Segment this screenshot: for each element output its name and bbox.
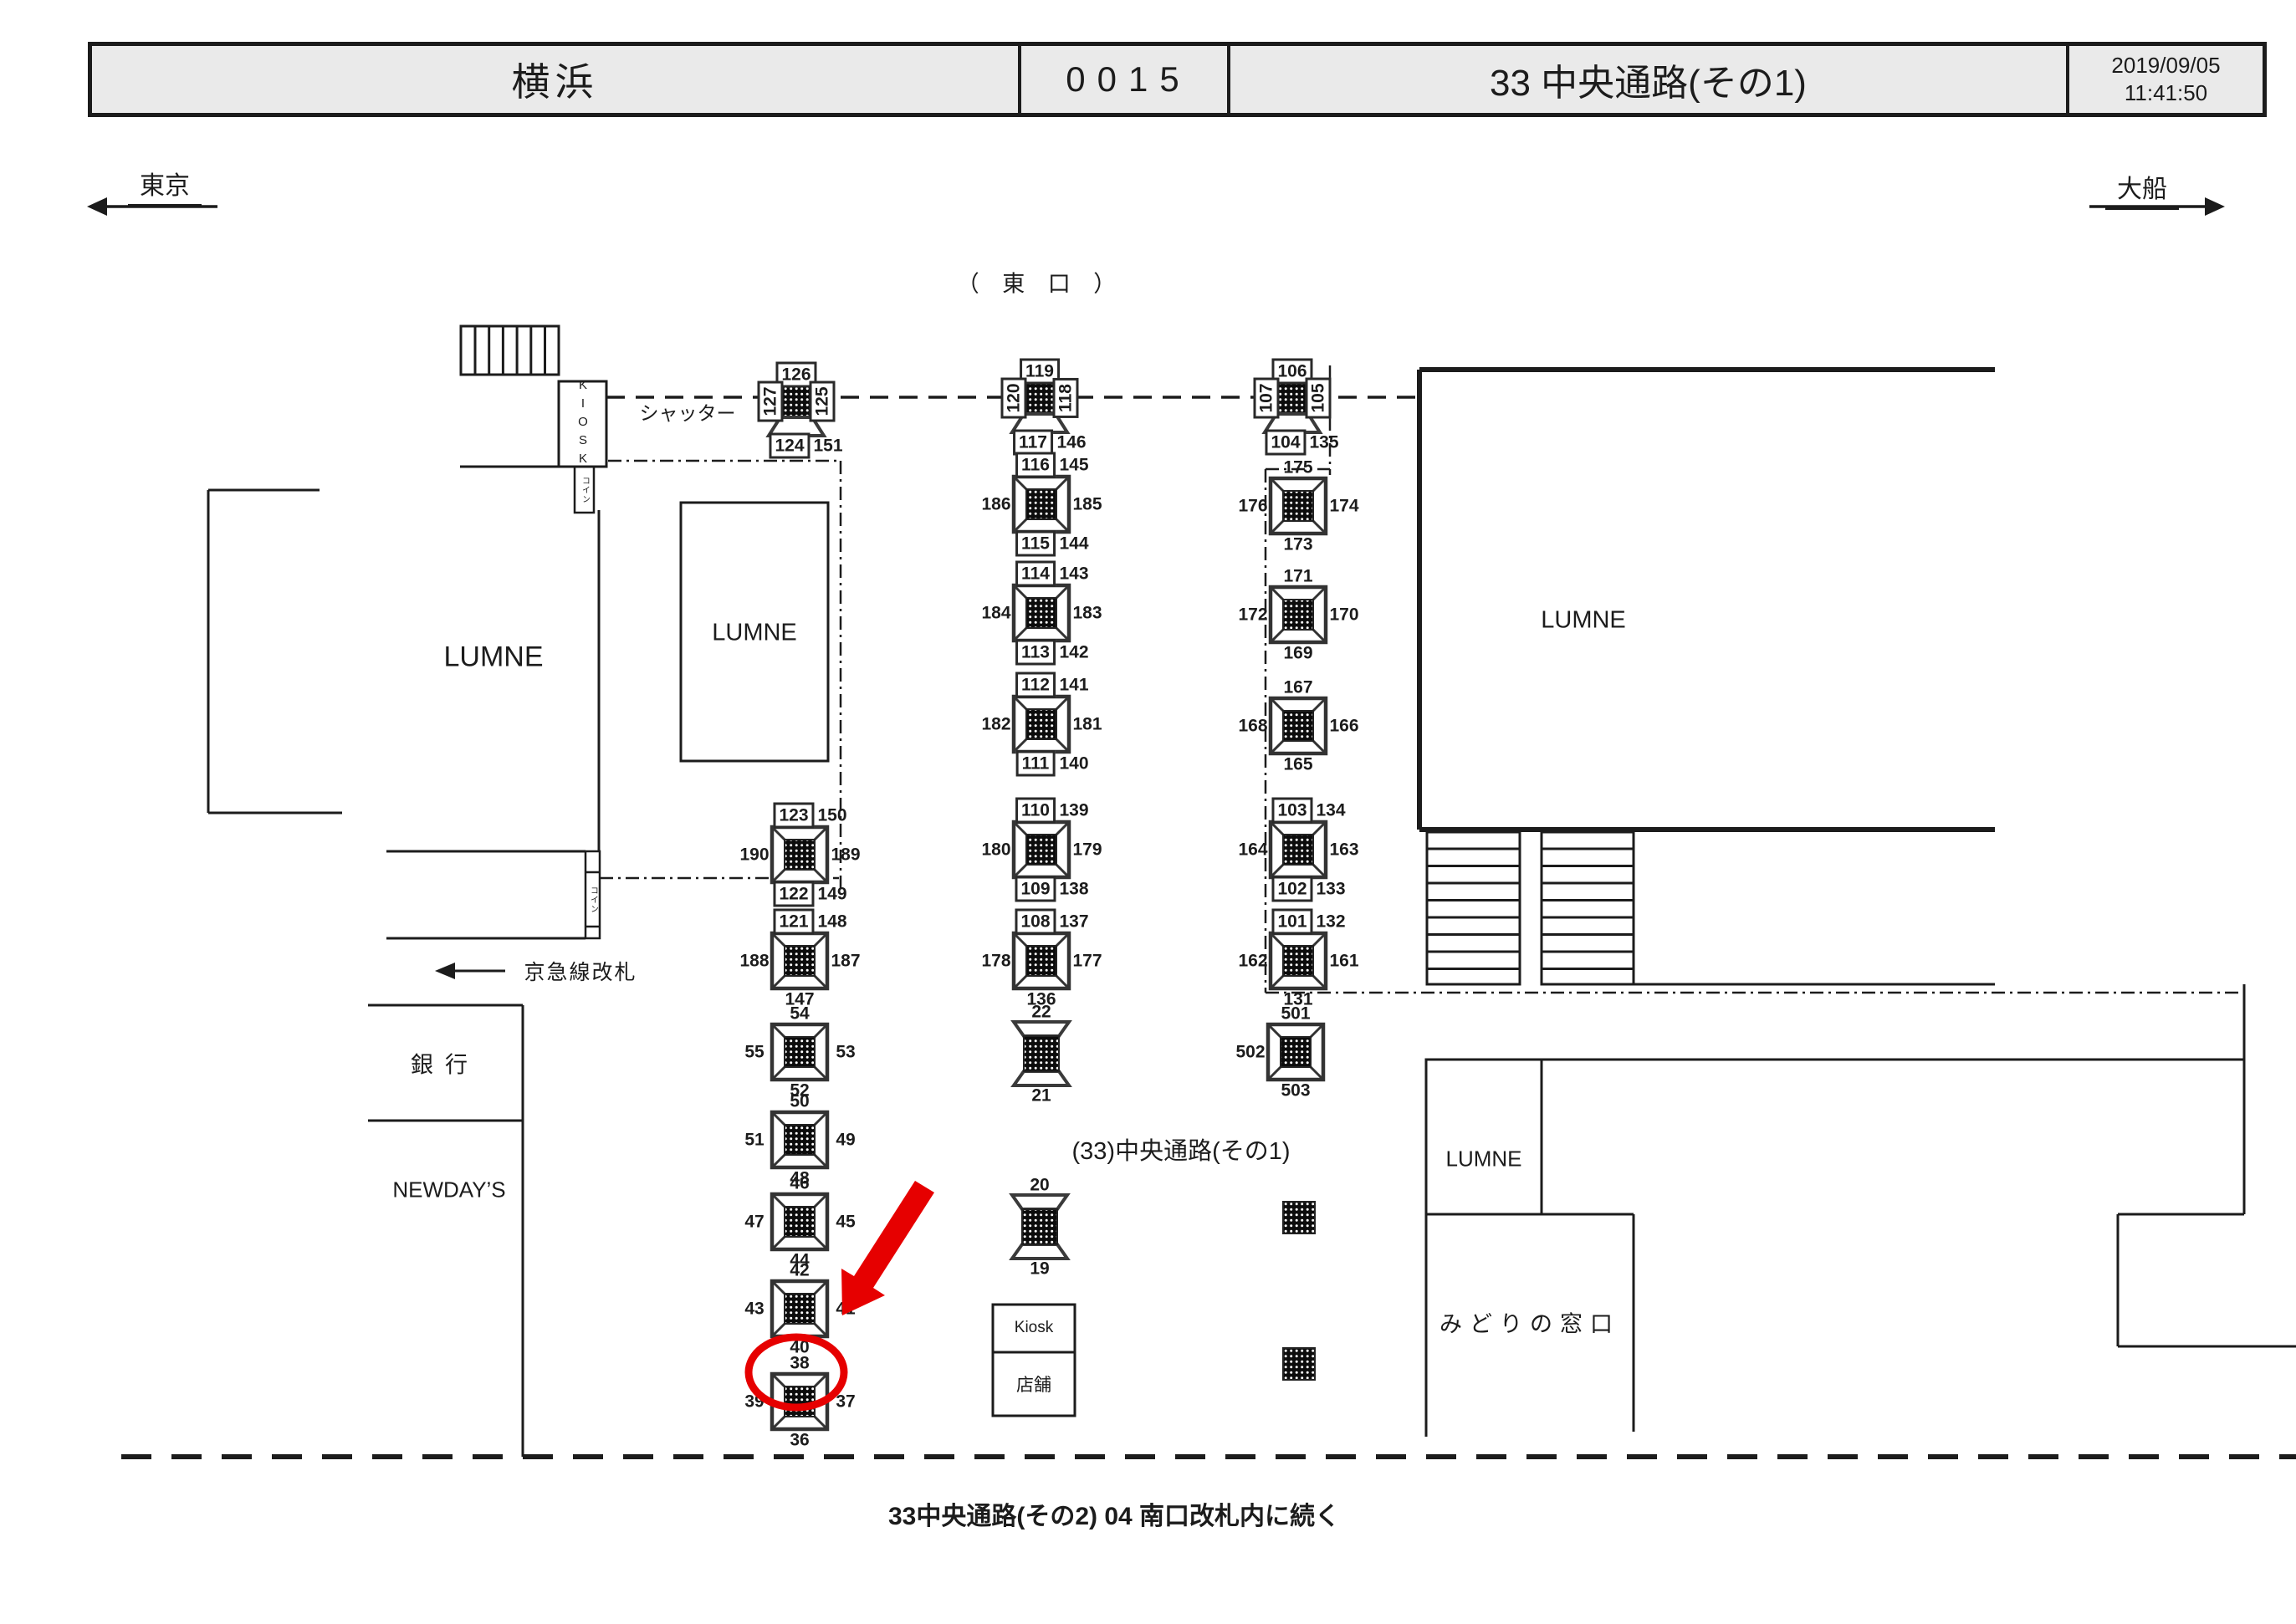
station-map-canvas: 横浜 0015 33 中央通路(その1) 2019/09/05 11:41:50… bbox=[0, 0, 2296, 1624]
annotation-layer bbox=[0, 0, 2296, 1624]
red-arrow-annotation bbox=[841, 1181, 934, 1315]
red-circle-annotation bbox=[749, 1337, 844, 1407]
